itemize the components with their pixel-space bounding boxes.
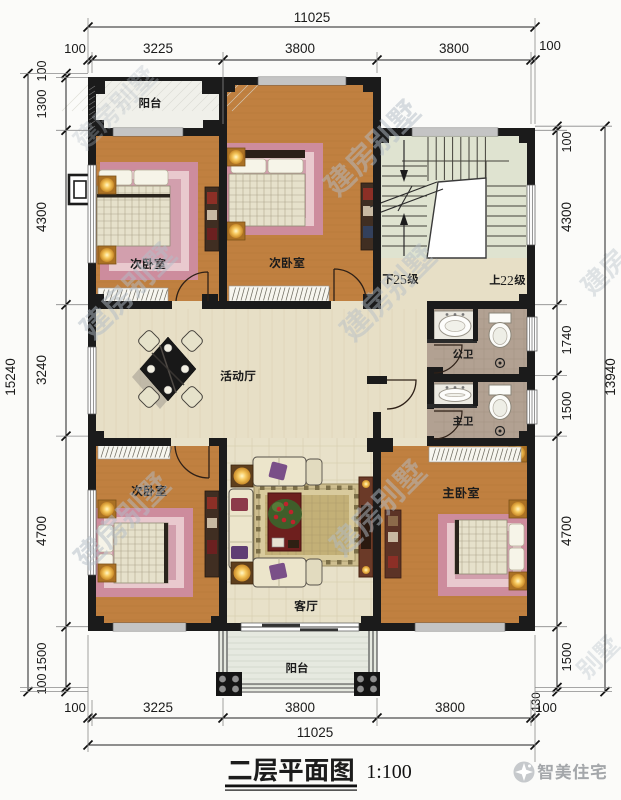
svg-text:3800: 3800: [285, 41, 315, 56]
svg-text:3225: 3225: [143, 41, 173, 56]
svg-text:100: 100: [539, 38, 561, 53]
svg-text:100: 100: [64, 700, 86, 715]
svg-text:3800: 3800: [435, 700, 465, 715]
svg-text:1740: 1740: [559, 326, 574, 355]
svg-text:4300: 4300: [34, 202, 49, 232]
svg-text:3225: 3225: [143, 700, 173, 715]
svg-text:4700: 4700: [34, 516, 49, 546]
svg-text:130: 130: [531, 692, 543, 711]
svg-text:100: 100: [35, 61, 49, 82]
svg-text:1500: 1500: [559, 643, 574, 672]
svg-text:1:100: 1:100: [366, 761, 412, 783]
svg-text:11025: 11025: [297, 725, 334, 740]
svg-text:11025: 11025: [294, 10, 331, 25]
svg-text:1300: 1300: [34, 90, 49, 119]
svg-text:100: 100: [560, 132, 574, 153]
svg-text:3800: 3800: [439, 41, 469, 56]
svg-text:100: 100: [64, 41, 86, 56]
svg-text:1500: 1500: [34, 643, 49, 672]
svg-text:1500: 1500: [559, 392, 574, 421]
svg-text:4300: 4300: [559, 202, 574, 232]
svg-text:4700: 4700: [559, 516, 574, 546]
svg-text:3800: 3800: [285, 700, 315, 715]
svg-text:13940: 13940: [603, 358, 618, 396]
svg-text:3240: 3240: [34, 355, 49, 385]
svg-text:22: 22: [500, 273, 514, 288]
svg-text:15240: 15240: [3, 358, 18, 396]
